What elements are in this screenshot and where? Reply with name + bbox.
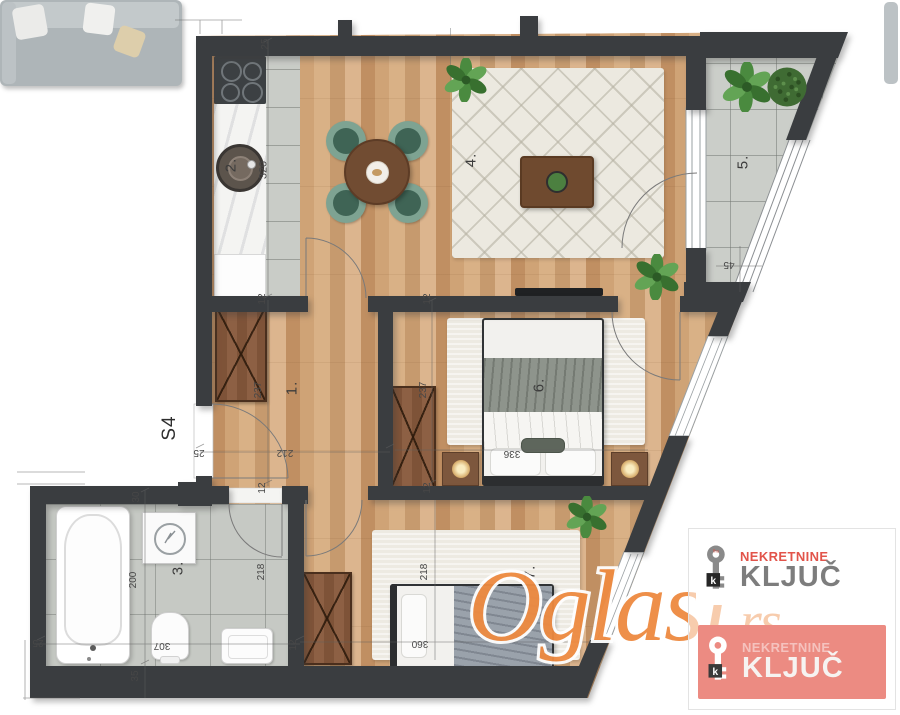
nightstand: [611, 452, 648, 486]
room-label-kitchen: 2.: [223, 158, 240, 173]
dim-bedroom-main-depth: 237: [419, 382, 429, 399]
terrace-floor-tiles: [684, 56, 840, 294]
washing-machine-symbol: [162, 530, 178, 548]
agency-logos-panel: fha k NEKRETNINE KLJUČ k: [688, 528, 896, 710]
dim-bath-width: 307: [154, 640, 171, 650]
dim-wall: 12: [423, 293, 433, 304]
dim-entry-width: 25: [193, 447, 204, 457]
stove: [214, 56, 266, 104]
bed-accent-pillow: [521, 438, 565, 453]
dim-hall-width: 212: [277, 447, 294, 457]
burner: [243, 62, 262, 81]
sofa: [0, 0, 182, 86]
sofa-cushion-split: [450, 28, 451, 82]
room-label-bedroom-main: 6.: [531, 378, 548, 393]
dim-terrace-width: 45: [723, 259, 734, 269]
burner: [242, 82, 263, 103]
burner: [221, 83, 240, 102]
lamp: [621, 460, 639, 478]
bedroom-main-wardrobe: [390, 386, 436, 488]
bathroom-sink-basin: [228, 635, 268, 659]
key-icon: fha k: [705, 545, 733, 597]
dim-wall: 12: [258, 293, 268, 304]
kitchen-cabinet: [214, 254, 266, 298]
dim-bath-left: 25: [32, 637, 43, 647]
bathtub-basin: [64, 514, 122, 646]
double-bed: [482, 318, 604, 486]
dining-plate: [366, 161, 389, 184]
key-icon: k: [707, 636, 735, 688]
dim-wall: 12: [423, 482, 433, 493]
dim-kitchen-depth: 320: [259, 161, 270, 179]
bedroom-second-wardrobe: [302, 572, 352, 665]
sofa-armrest: [884, 2, 898, 84]
agency-logo-primary-text: NEKRETNINE KLJUČ: [740, 550, 842, 593]
dim-wall: 12: [258, 482, 268, 493]
sofa-pillow: [11, 3, 48, 40]
agency-logo-primary: fha k NEKRETNINE KLJUČ: [696, 537, 888, 605]
floor-plan: 2. 4. 5. 1. 6. 3. 7. S4 25 320 12 12 12 …: [0, 0, 900, 715]
dim-bedroom-second-width: 360: [412, 638, 429, 648]
unit-label: S4: [159, 415, 181, 440]
svg-text:k: k: [712, 667, 718, 678]
bed-headboard: [390, 584, 397, 668]
bathtub-drain: [90, 645, 96, 651]
bathtub: [56, 506, 130, 664]
agency-logo-secondary-text: NEKRETNINE KLJUČ: [742, 641, 844, 684]
brand-line2: KLJUČ: [742, 654, 844, 683]
nightstand: [442, 452, 479, 486]
bathroom-sink: [221, 628, 273, 664]
washing-machine: [142, 512, 196, 564]
dim-bath-bottom: 35: [131, 670, 141, 681]
bathtub-faucet: [87, 657, 91, 661]
dim-hall-depth: 237: [254, 382, 264, 399]
dim-wall: 12: [289, 639, 299, 650]
dim-bath-top: 30: [132, 491, 142, 502]
dim-kitchen-top: 25: [261, 38, 271, 49]
dim-bath-inner: 218: [257, 564, 267, 581]
kitchen-faucet: [247, 160, 256, 169]
toilet: [151, 612, 189, 660]
svg-text:k: k: [710, 576, 716, 587]
sofa-pillow: [82, 2, 115, 35]
agency-logo-secondary: k NEKRETNINE KLJUČ: [698, 625, 886, 699]
tv: [515, 288, 603, 296]
brand-line2: KLJUČ: [740, 563, 842, 592]
burner: [221, 61, 242, 82]
bed-headboard: [482, 476, 604, 486]
dim-bath-depth: 200: [129, 572, 139, 589]
room-label-living: 4.: [463, 153, 480, 168]
sofa-pillow: [112, 24, 147, 59]
room-label-hall: 1.: [284, 381, 301, 396]
dim-bedroom-main-width: 336: [504, 448, 521, 458]
room-label-bathroom: 3.: [170, 561, 187, 576]
coffee-table-plant: [546, 171, 568, 193]
dim-bedroom-second-depth: 218: [420, 564, 430, 581]
lamp: [452, 460, 470, 478]
toilet-base: [160, 656, 180, 664]
svg-text:fha: fha: [713, 548, 719, 553]
room-label-terrace: 5.: [735, 155, 752, 170]
